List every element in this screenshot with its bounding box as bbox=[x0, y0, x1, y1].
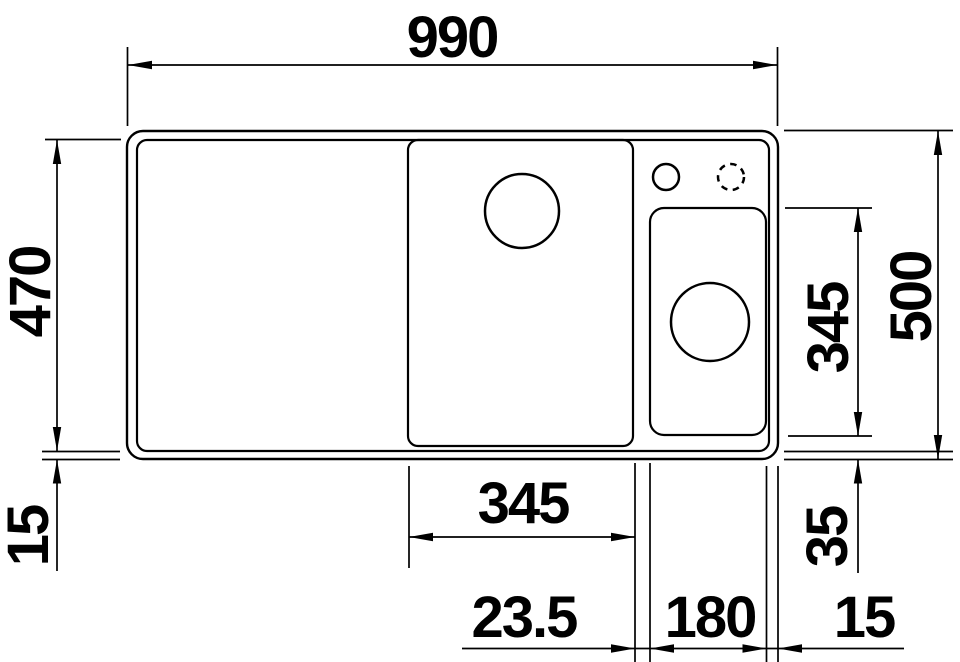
side-bowl-drain-hole bbox=[671, 283, 749, 361]
arrowhead bbox=[854, 412, 862, 436]
dim-label-rim-offset-left: 15 bbox=[0, 505, 61, 566]
technical-drawing-page: 990 470 15 345 500 35 345 23.5 180 15 bbox=[0, 0, 960, 662]
arrowhead bbox=[611, 644, 635, 652]
arrowhead bbox=[934, 131, 942, 155]
tap-hole-optional-dashed bbox=[718, 164, 744, 190]
dim-label-side-bowl-depth: 345 bbox=[796, 282, 861, 374]
main-bowl-drain-hole bbox=[485, 174, 559, 248]
arrowhead bbox=[854, 460, 862, 484]
arrowhead bbox=[53, 140, 61, 164]
arrowhead bbox=[611, 533, 635, 541]
arrowhead bbox=[53, 427, 61, 451]
dim-label-overall-width: 990 bbox=[407, 5, 498, 70]
dim-label-inner-depth: 470 bbox=[0, 247, 63, 338]
main-bowl bbox=[408, 140, 633, 446]
arrowhead bbox=[53, 460, 61, 484]
arrowhead bbox=[753, 61, 777, 69]
dim-label-rim-offset-right: 15 bbox=[834, 585, 895, 650]
arrowhead bbox=[778, 644, 802, 652]
dim-label-side-bowl-width: 180 bbox=[665, 585, 756, 650]
dimension-labels: 990 470 15 345 500 35 345 23.5 180 15 bbox=[0, 5, 944, 650]
sink-dimension-drawing: 990 470 15 345 500 35 345 23.5 180 15 bbox=[0, 0, 960, 662]
sink-body bbox=[127, 131, 778, 459]
arrowhead bbox=[854, 208, 862, 232]
arrowhead bbox=[128, 61, 152, 69]
arrowhead bbox=[934, 435, 942, 459]
tap-hole bbox=[653, 164, 679, 190]
dim-label-bowl-gap: 23.5 bbox=[472, 585, 578, 650]
dim-label-overall-depth: 500 bbox=[879, 252, 944, 343]
dim-label-side-bowl-offset: 35 bbox=[795, 506, 860, 567]
arrowhead bbox=[409, 533, 433, 541]
dim-label-main-bowl-width: 345 bbox=[478, 471, 570, 536]
